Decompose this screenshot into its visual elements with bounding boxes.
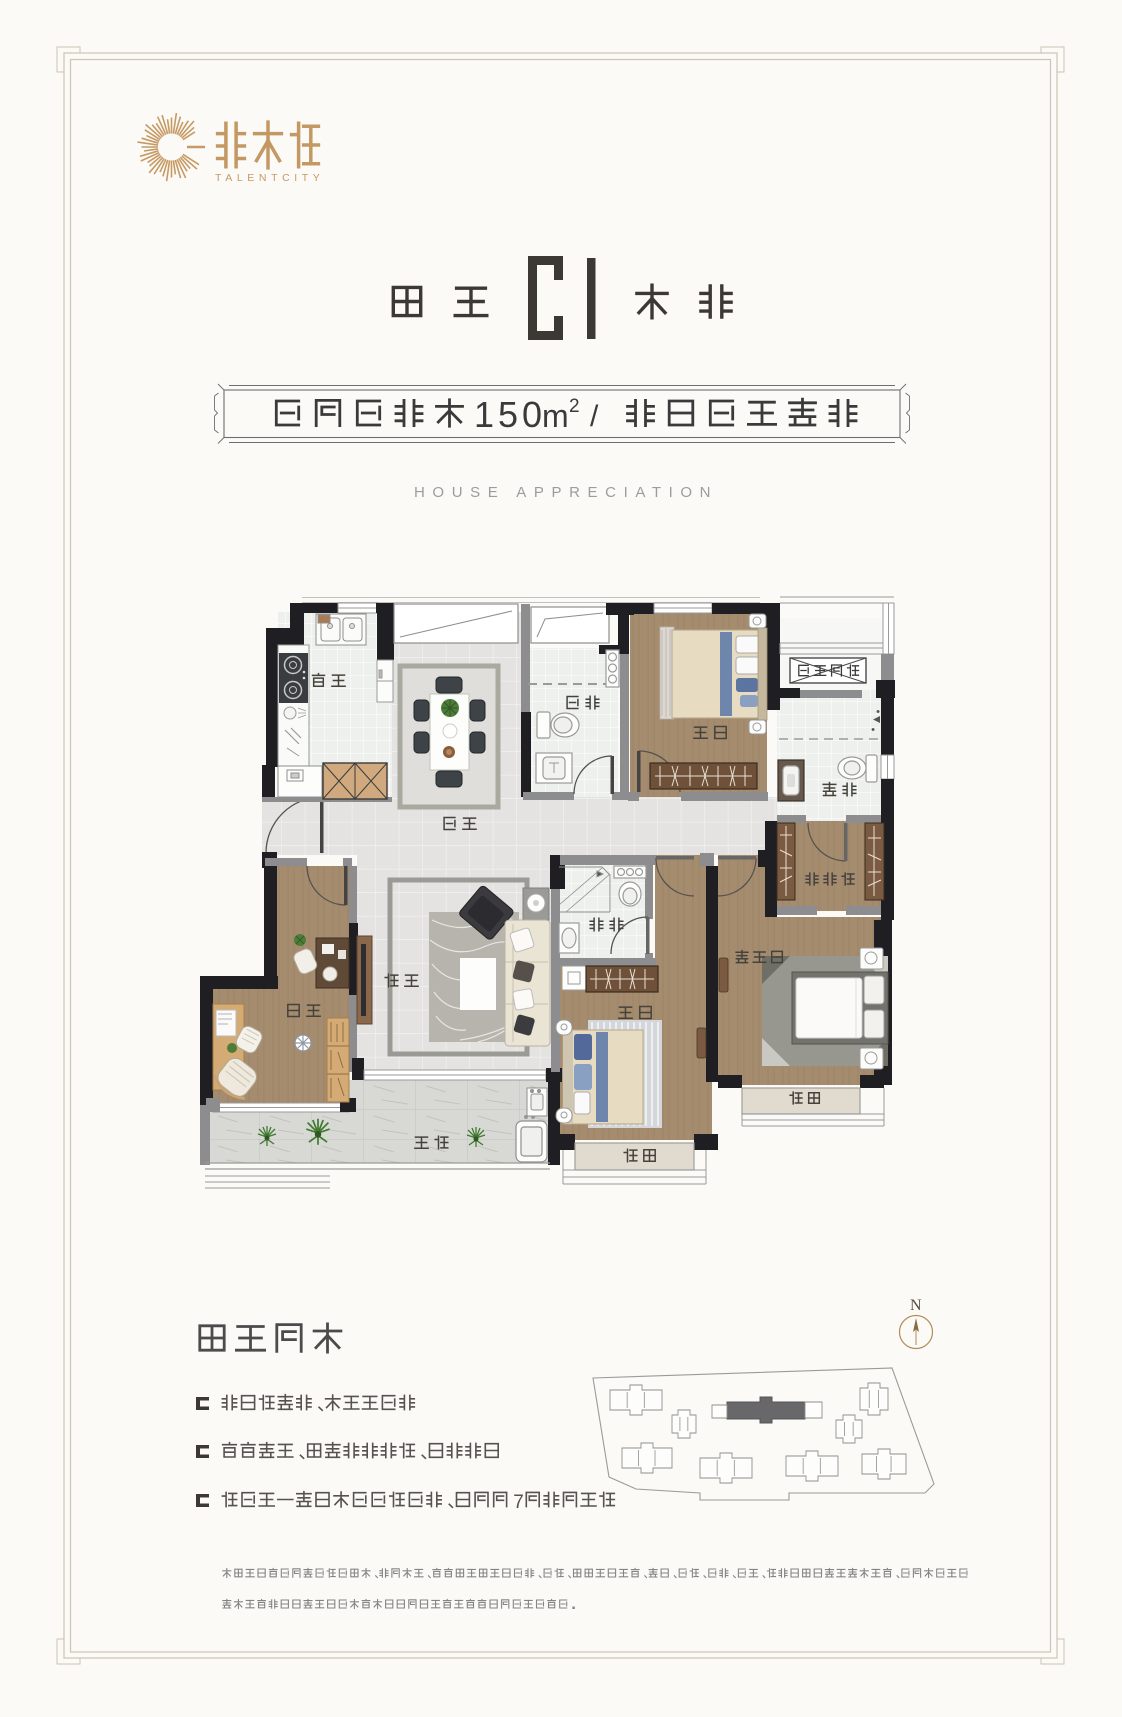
svg-text:N: N [910, 1297, 922, 1314]
svg-text:2: 2 [569, 396, 580, 417]
svg-text:HOUSE APPRECIATION: HOUSE APPRECIATION [414, 484, 718, 501]
svg-text:150: 150 [474, 394, 546, 435]
svg-text:7: 7 [513, 1492, 524, 1513]
svg-text:/: / [590, 400, 599, 433]
svg-text:m: m [542, 398, 569, 434]
svg-text:TALENTCITY: TALENTCITY [215, 172, 324, 184]
